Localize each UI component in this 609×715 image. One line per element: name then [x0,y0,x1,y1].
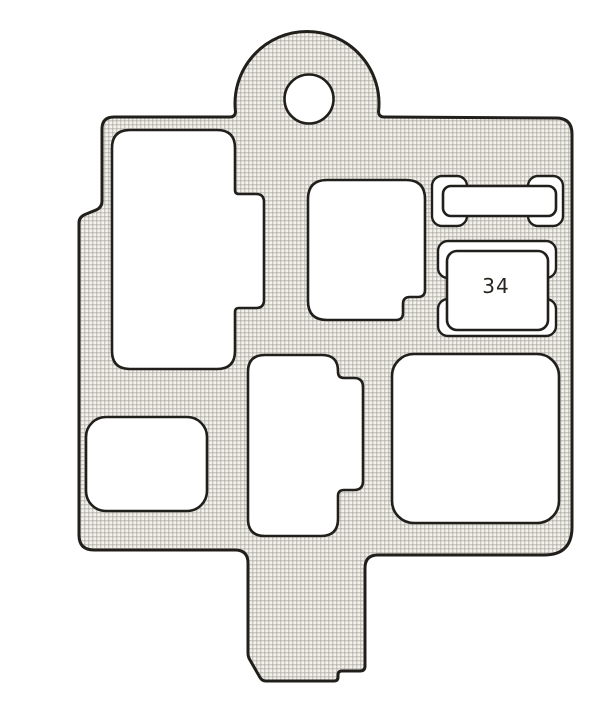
cutout-bottom-left [86,417,207,511]
relay-socket-34: 34 [438,241,556,336]
fuse-box-diagram: 34 [0,0,609,715]
mounting-hole [285,75,334,124]
relay-label: 34 [482,274,509,298]
cutout-bottom-right [392,354,559,523]
slot-bar [443,186,556,216]
fuse-box-diagram-page: 34 [0,0,609,715]
